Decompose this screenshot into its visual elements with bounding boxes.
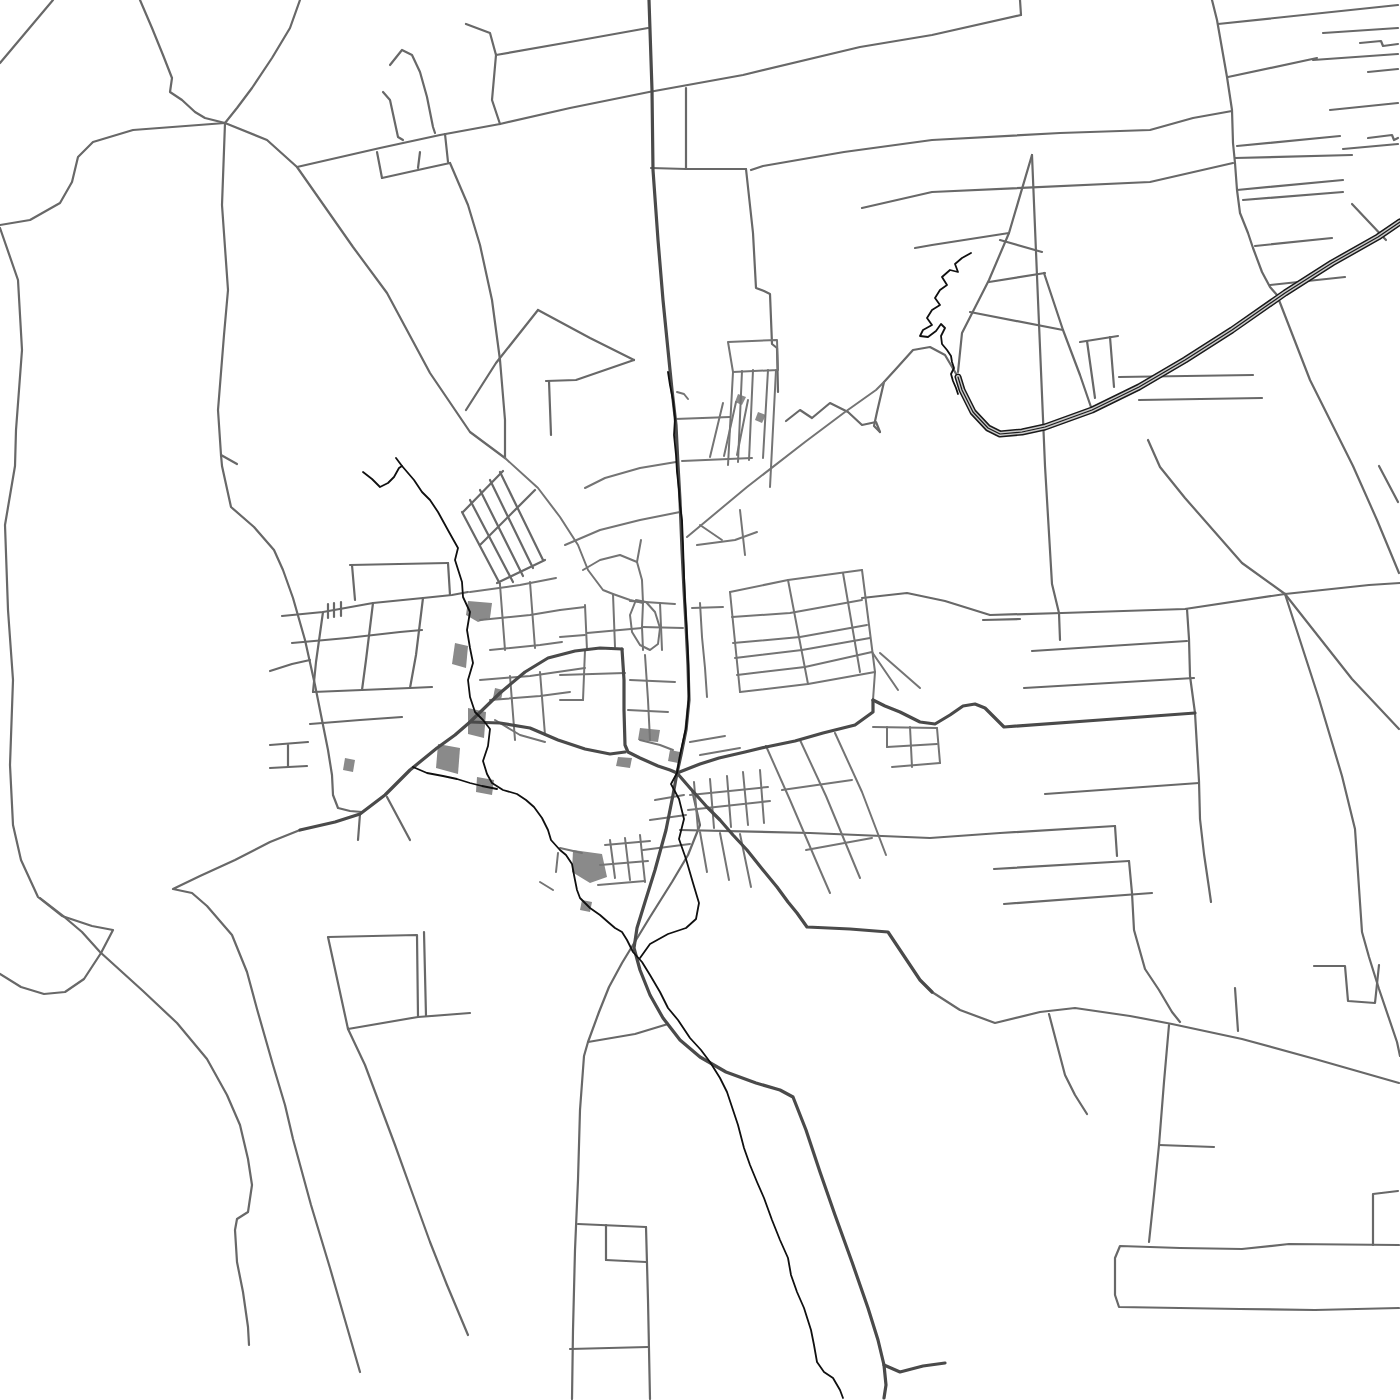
city-map-svg <box>0 0 1400 1400</box>
layer-highway <box>958 222 1400 434</box>
layer-field-roads <box>0 0 1400 1399</box>
layer-main-roads <box>300 0 1195 1398</box>
map-viewport <box>0 0 1400 1400</box>
